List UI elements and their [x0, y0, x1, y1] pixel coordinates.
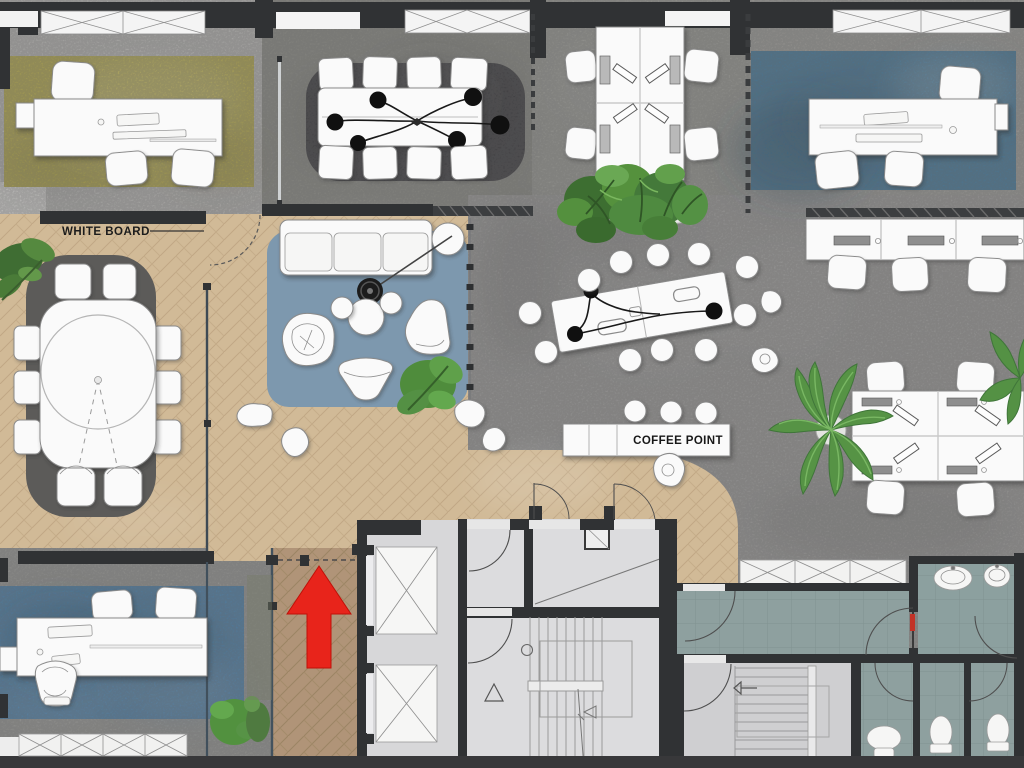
svg-text:COFFEE POINT: COFFEE POINT: [633, 435, 723, 447]
svg-text:WHITE BOARD: WHITE BOARD: [62, 226, 150, 238]
